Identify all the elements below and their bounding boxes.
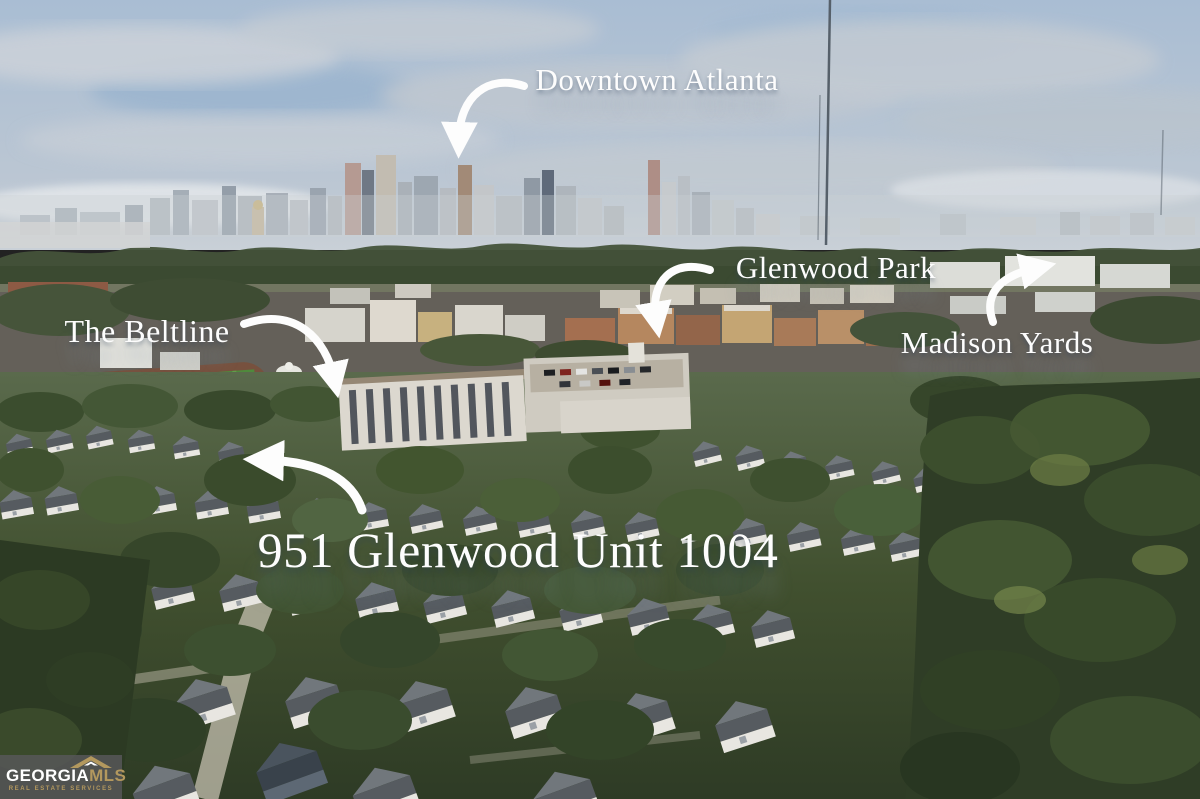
label-the-beltline: The Beltline	[64, 313, 229, 350]
aerial-photo: Downtown Atlanta Glenwood Park The Beltl…	[0, 0, 1200, 799]
logo-text-georgia: GEORGIA	[6, 766, 89, 785]
aerial-photo-scene	[0, 0, 1200, 799]
logo-tagline: REAL ESTATE SERVICES	[0, 786, 122, 792]
label-glenwood-park: Glenwood Park	[736, 250, 936, 286]
label-madison-yards: Madison Yards	[901, 325, 1094, 361]
label-property-title: 951 Glenwood Unit 1004	[258, 521, 779, 579]
label-downtown-atlanta: Downtown Atlanta	[535, 62, 778, 98]
logo-wordmark: GEORGIAMLS	[6, 766, 126, 786]
logo-text-mls: MLS	[89, 766, 126, 785]
georgia-mls-logo: GEORGIAMLS REAL ESTATE SERVICES	[0, 755, 122, 799]
